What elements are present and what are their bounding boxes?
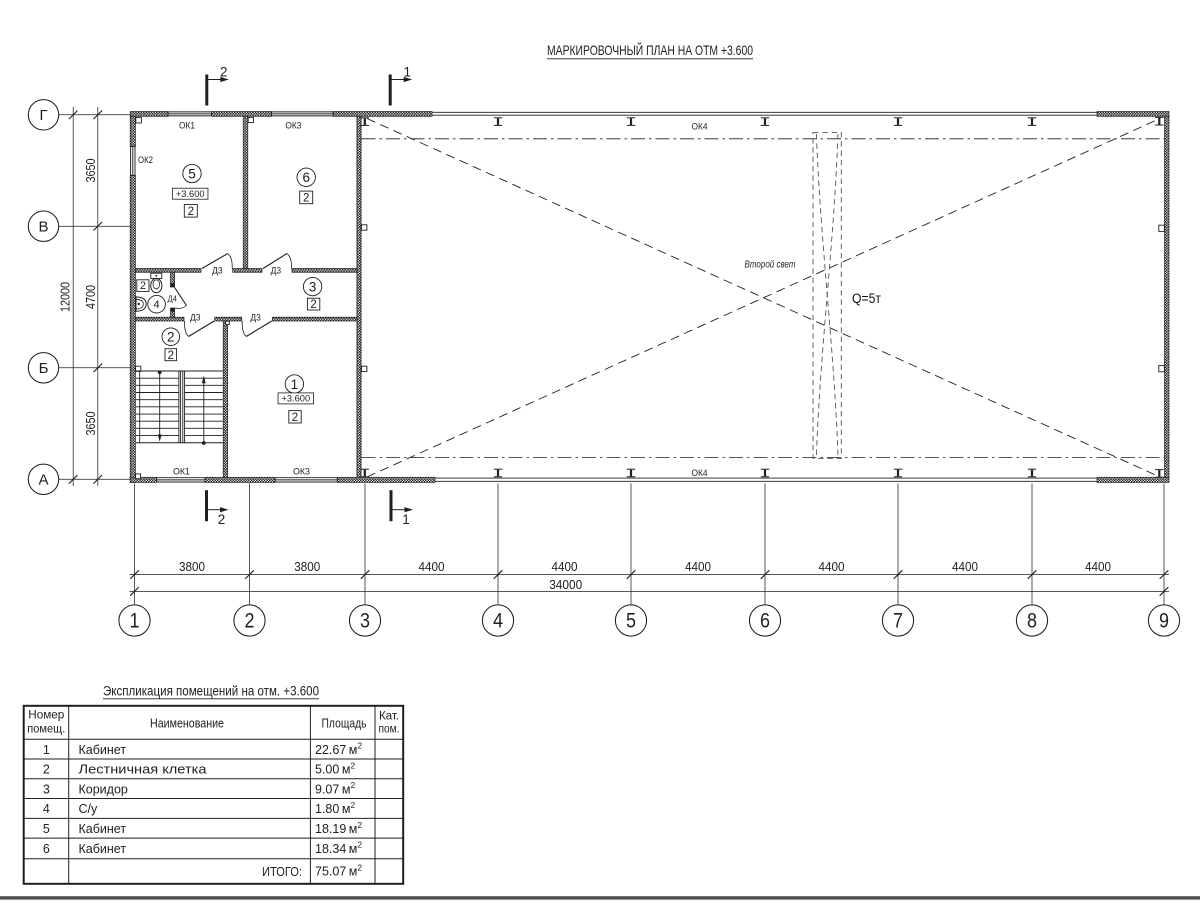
svg-text:3800: 3800 <box>294 559 320 574</box>
svg-text:6: 6 <box>302 170 310 185</box>
svg-text:12000: 12000 <box>58 282 73 312</box>
svg-text:Площадь: Площадь <box>322 717 367 731</box>
svg-text:3: 3 <box>309 279 317 294</box>
svg-text:1: 1 <box>43 743 50 757</box>
svg-text:2: 2 <box>168 350 174 362</box>
svg-text:1: 1 <box>291 377 299 392</box>
svg-text:Д3: Д3 <box>250 313 261 323</box>
svg-text:С/у: С/у <box>79 802 99 816</box>
svg-text:Б: Б <box>39 360 49 377</box>
svg-text:ОК1: ОК1 <box>173 467 190 478</box>
svg-text:4400: 4400 <box>552 559 578 574</box>
svg-text:7: 7 <box>893 610 903 633</box>
svg-text:18.19 м2: 18.19 м2 <box>315 820 362 836</box>
svg-text:3800: 3800 <box>179 559 205 574</box>
svg-text:2: 2 <box>167 330 175 345</box>
svg-text:75.07 м2: 75.07 м2 <box>315 862 362 878</box>
svg-text:2: 2 <box>43 763 50 777</box>
svg-text:ОК4: ОК4 <box>692 122 708 133</box>
svg-text:4400: 4400 <box>419 559 445 574</box>
svg-text:2: 2 <box>310 299 316 311</box>
svg-text:Второй свет: Второй свет <box>745 259 796 271</box>
svg-text:6: 6 <box>760 610 770 633</box>
svg-text:3650: 3650 <box>83 412 98 436</box>
svg-text:2: 2 <box>188 206 194 218</box>
svg-text:34000: 34000 <box>549 577 582 592</box>
svg-text:Д3: Д3 <box>271 265 282 275</box>
svg-text:Коридор: Коридор <box>79 782 128 796</box>
svg-text:Г: Г <box>39 107 47 124</box>
svg-text:+3.600: +3.600 <box>281 394 310 404</box>
svg-text:В: В <box>38 219 48 236</box>
svg-text:Q=5т: Q=5т <box>852 291 881 306</box>
svg-text:4: 4 <box>154 299 160 311</box>
svg-text:1: 1 <box>402 512 410 527</box>
svg-text:22.67 м2: 22.67 м2 <box>315 741 362 757</box>
svg-text:18.34 м2: 18.34 м2 <box>315 840 362 856</box>
svg-text:2: 2 <box>245 610 255 633</box>
svg-text:ИТОГО:: ИТОГО: <box>262 865 302 879</box>
svg-text:5: 5 <box>188 166 196 181</box>
svg-text:4400: 4400 <box>1085 559 1111 574</box>
svg-text:9.07 м2: 9.07 м2 <box>315 780 355 796</box>
svg-text:Д3: Д3 <box>212 265 223 275</box>
svg-text:2: 2 <box>220 65 228 80</box>
svg-text:МАРКИРОВОЧНЫЙ ПЛАН НА ОТМ +3.6: МАРКИРОВОЧНЫЙ ПЛАН НА ОТМ +3.600 <box>547 41 753 58</box>
svg-text:Кабинет: Кабинет <box>79 743 127 757</box>
svg-text:ОК4: ОК4 <box>692 468 708 479</box>
svg-text:2: 2 <box>140 280 146 292</box>
svg-text:4400: 4400 <box>685 559 711 574</box>
svg-text:3: 3 <box>43 782 50 796</box>
svg-text:1.80 м2: 1.80 м2 <box>315 800 355 816</box>
svg-text:9: 9 <box>1159 610 1169 633</box>
svg-text:5: 5 <box>43 822 50 836</box>
svg-text:Лестничная клетка: Лестничная клетка <box>79 763 207 777</box>
svg-text:Кат.: Кат. <box>379 711 399 723</box>
svg-text:5.00 м2: 5.00 м2 <box>315 760 355 776</box>
svg-text:1: 1 <box>130 610 140 633</box>
svg-text:2: 2 <box>303 193 309 205</box>
svg-text:4700: 4700 <box>83 285 98 309</box>
svg-text:ОК3: ОК3 <box>293 467 310 478</box>
svg-text:помещ.: помещ. <box>27 722 65 736</box>
svg-text:1: 1 <box>403 65 411 80</box>
svg-text:+3.600: +3.600 <box>176 189 205 199</box>
svg-text:5: 5 <box>626 610 636 633</box>
svg-text:4: 4 <box>43 802 50 816</box>
svg-text:Наименование: Наименование <box>150 717 224 731</box>
svg-text:3650: 3650 <box>83 159 98 183</box>
svg-text:ОК3: ОК3 <box>285 121 301 132</box>
svg-text:4400: 4400 <box>819 559 845 574</box>
svg-text:ОК2: ОК2 <box>138 155 153 166</box>
svg-text:6: 6 <box>43 842 50 856</box>
svg-text:2: 2 <box>292 412 298 424</box>
svg-text:ОК1: ОК1 <box>179 121 195 132</box>
svg-text:4: 4 <box>493 610 503 633</box>
svg-text:А: А <box>38 472 48 489</box>
svg-text:Кабинет: Кабинет <box>79 822 127 836</box>
svg-text:Д3: Д3 <box>190 313 201 323</box>
svg-text:2: 2 <box>218 512 226 527</box>
svg-text:4400: 4400 <box>952 559 978 574</box>
svg-text:Д4: Д4 <box>167 293 177 303</box>
svg-text:8: 8 <box>1027 610 1037 633</box>
svg-text:Экспликация помещений на отм.: Экспликация помещений на отм. +3.600 <box>103 684 319 699</box>
svg-text:Кабинет: Кабинет <box>79 842 127 856</box>
svg-text:Номер: Номер <box>28 708 64 722</box>
svg-text:пом.: пом. <box>379 724 400 736</box>
svg-text:3: 3 <box>360 610 370 633</box>
